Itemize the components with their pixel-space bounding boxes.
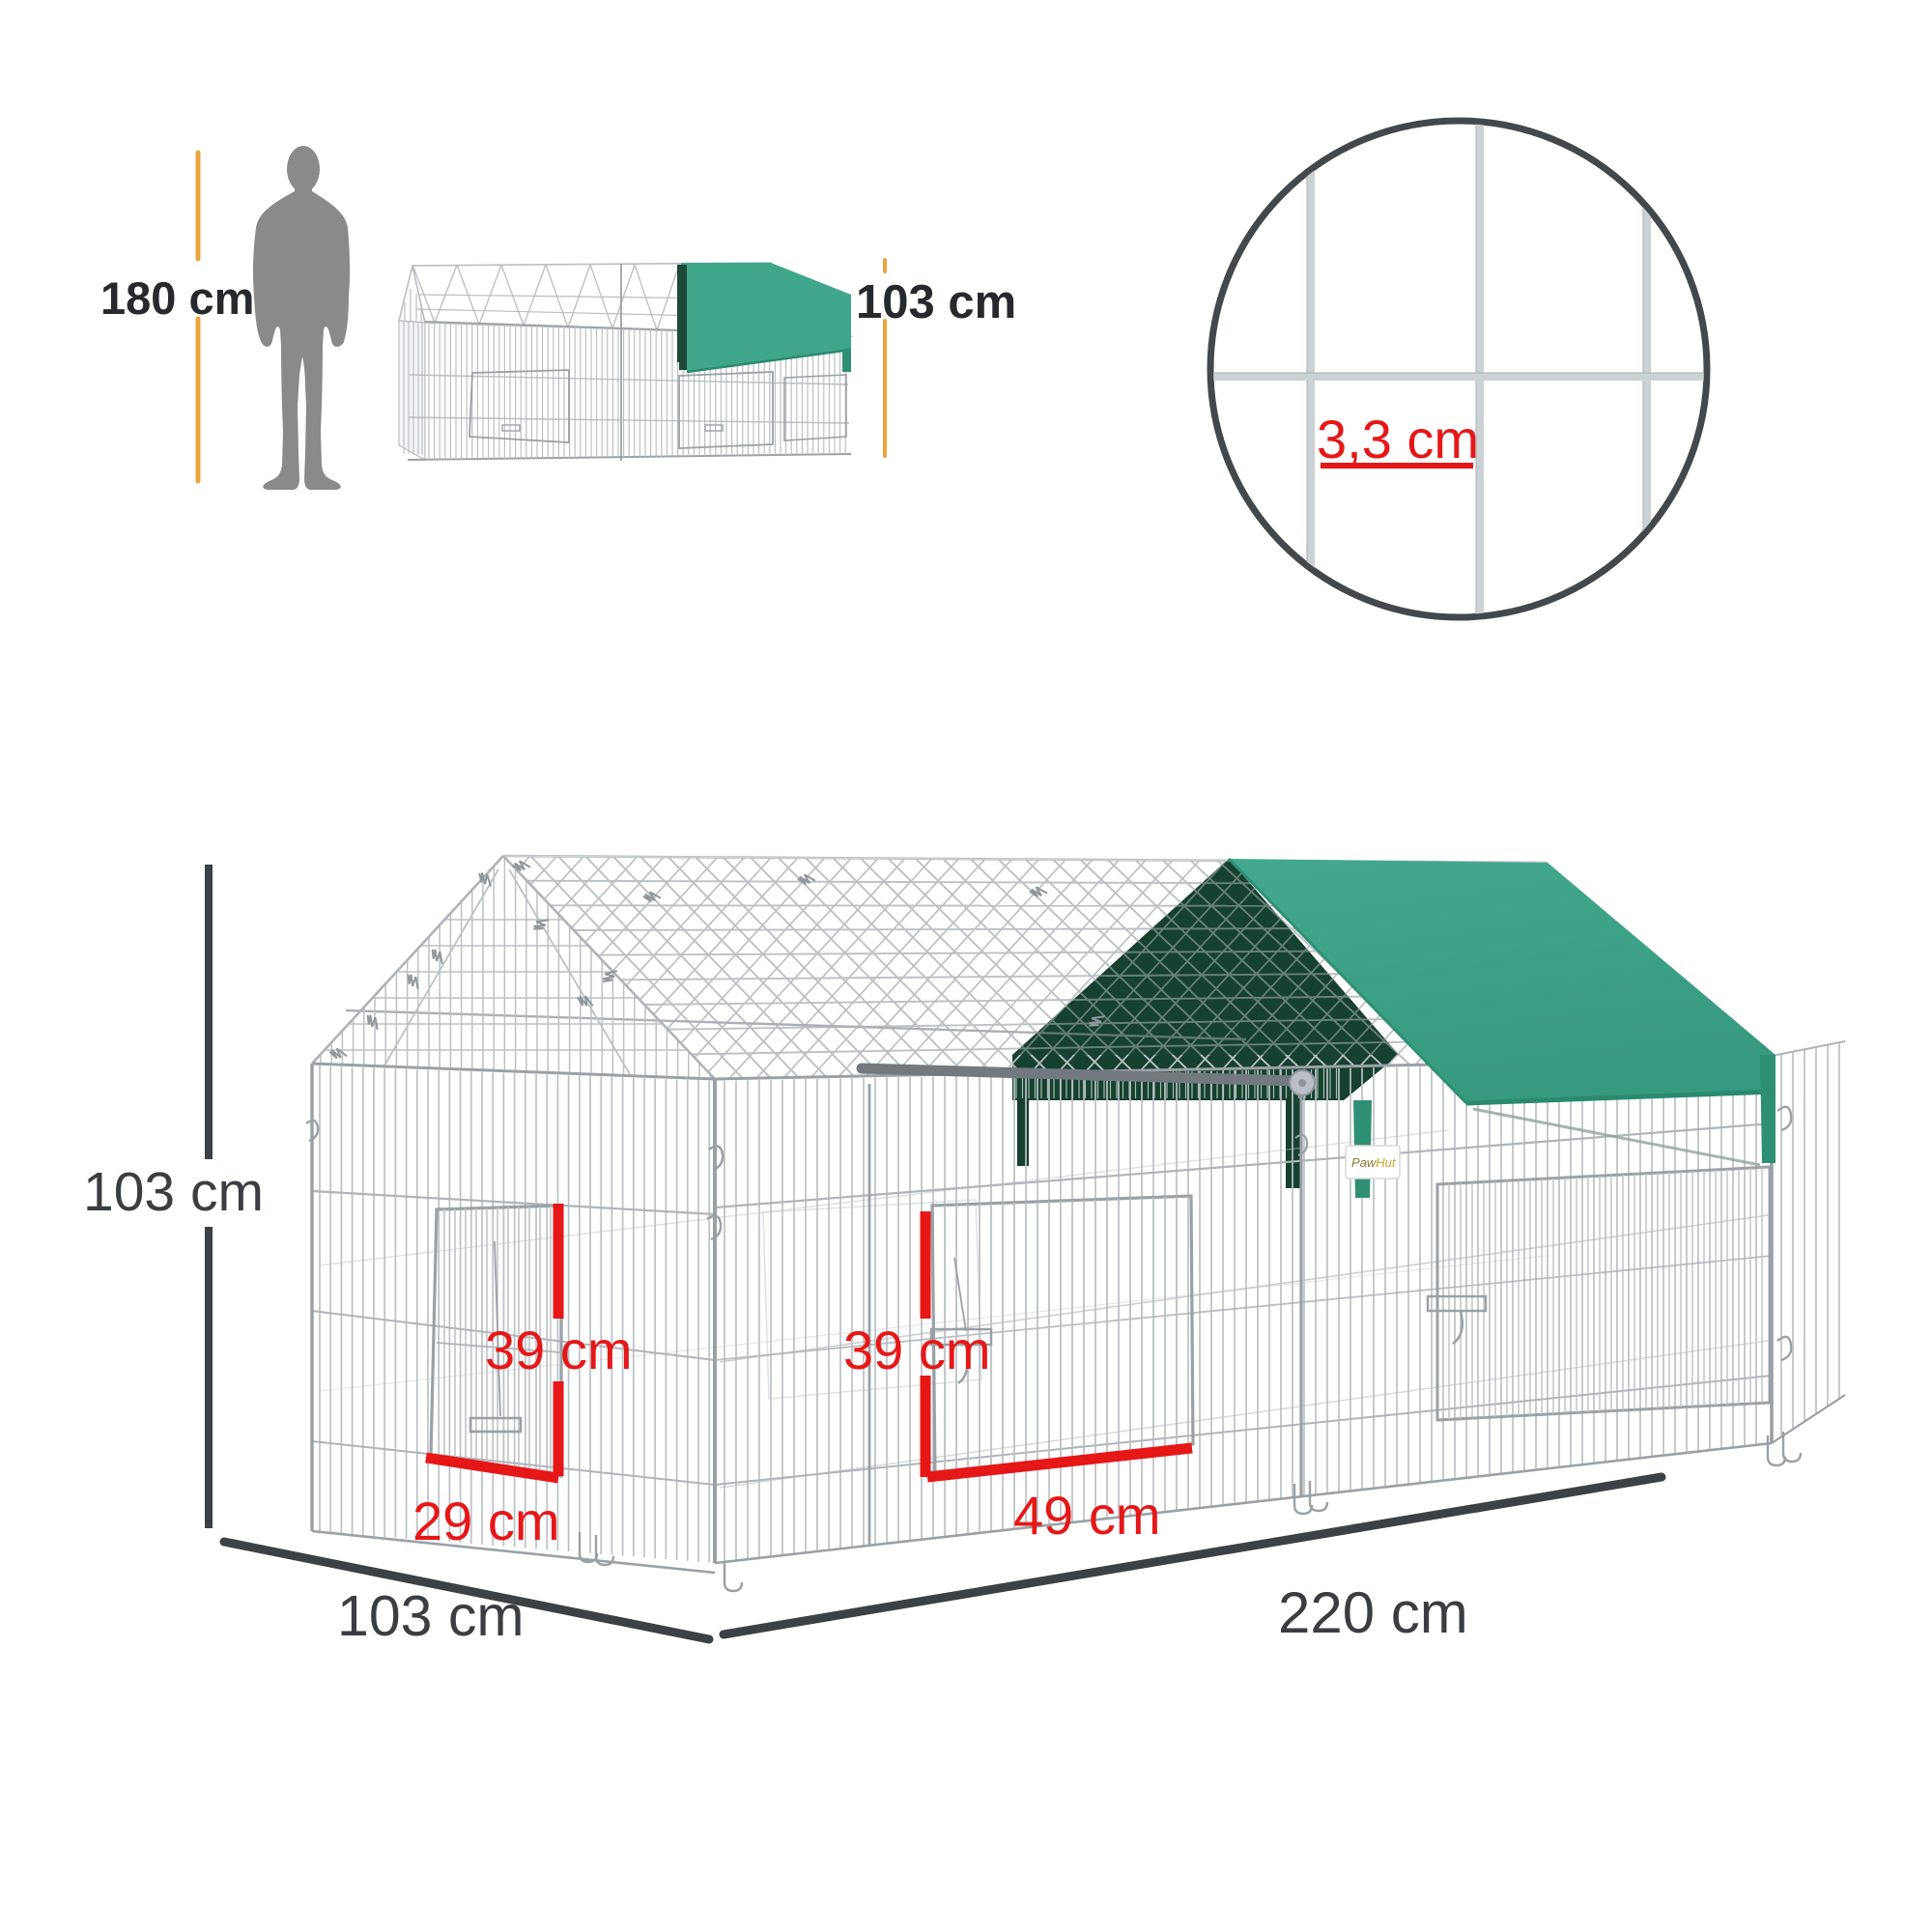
svg-text:29 cm: 29 cm [412, 1491, 560, 1551]
svg-text:49 cm: 49 cm [1013, 1485, 1161, 1546]
svg-text:39 cm: 39 cm [485, 1320, 633, 1380]
svg-text:220 cm: 220 cm [1278, 1580, 1468, 1645]
svg-text:103 cm: 103 cm [337, 1584, 524, 1648]
svg-text:103 cm: 103 cm [83, 1161, 264, 1223]
svg-text:39 cm: 39 cm [843, 1320, 991, 1380]
svg-text:180 cm: 180 cm [100, 272, 254, 324]
svg-text:PawHut: PawHut [1351, 1155, 1397, 1170]
svg-text:3,3 cm: 3,3 cm [1317, 409, 1479, 469]
svg-text:103 cm: 103 cm [856, 276, 1016, 328]
